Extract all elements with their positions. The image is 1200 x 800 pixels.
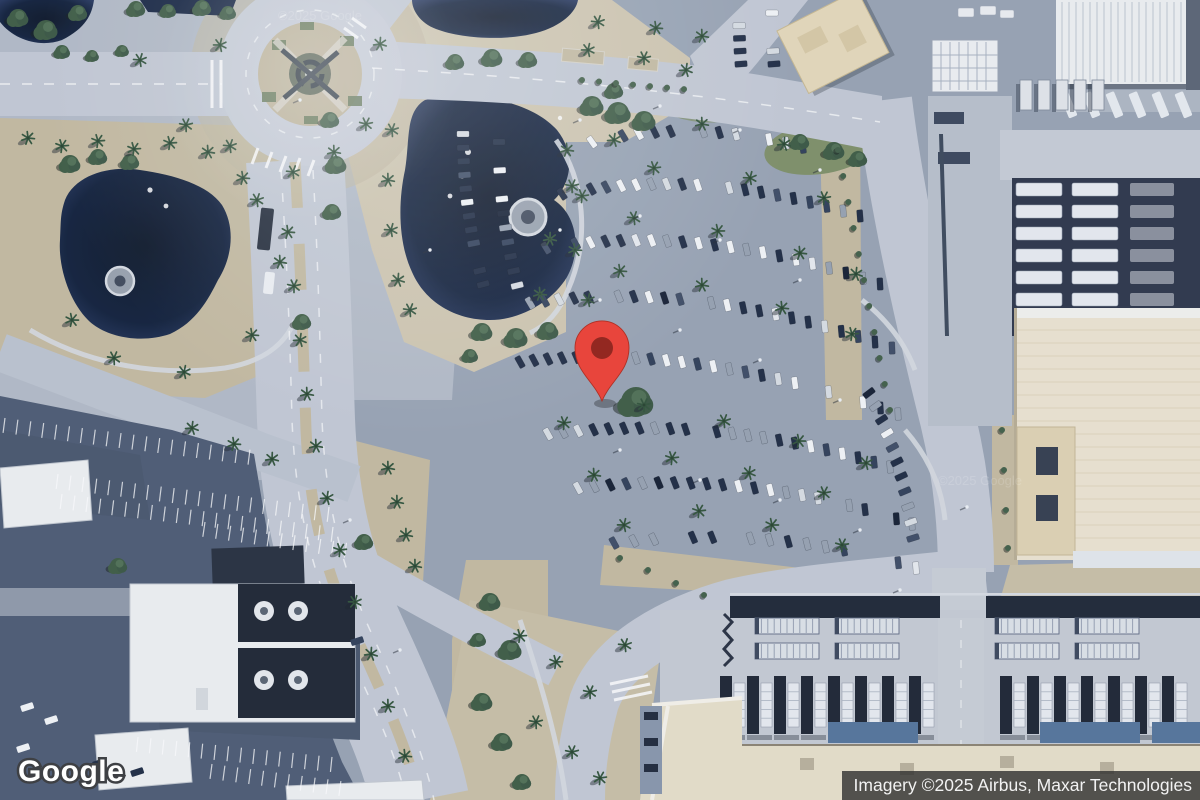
pin-inner-dot xyxy=(591,337,613,359)
google-logo[interactable]: Google xyxy=(12,750,172,794)
google-logo-text: Google xyxy=(18,755,124,788)
map-canvas[interactable]: ©2025 Google ©2025 Google xyxy=(0,0,1200,800)
watermark-text: ©2025 Google xyxy=(938,473,1022,488)
pin-shadow xyxy=(594,399,616,408)
attribution-text: Imagery ©2025 Airbus, Maxar Technologies xyxy=(854,775,1192,795)
attribution-bar: Imagery ©2025 Airbus, Maxar Technologies xyxy=(842,771,1200,800)
watermark-text: ©2025 Google xyxy=(278,8,362,23)
map-view[interactable]: ©2025 Google ©2025 Google Google Imagery… xyxy=(0,0,1200,800)
